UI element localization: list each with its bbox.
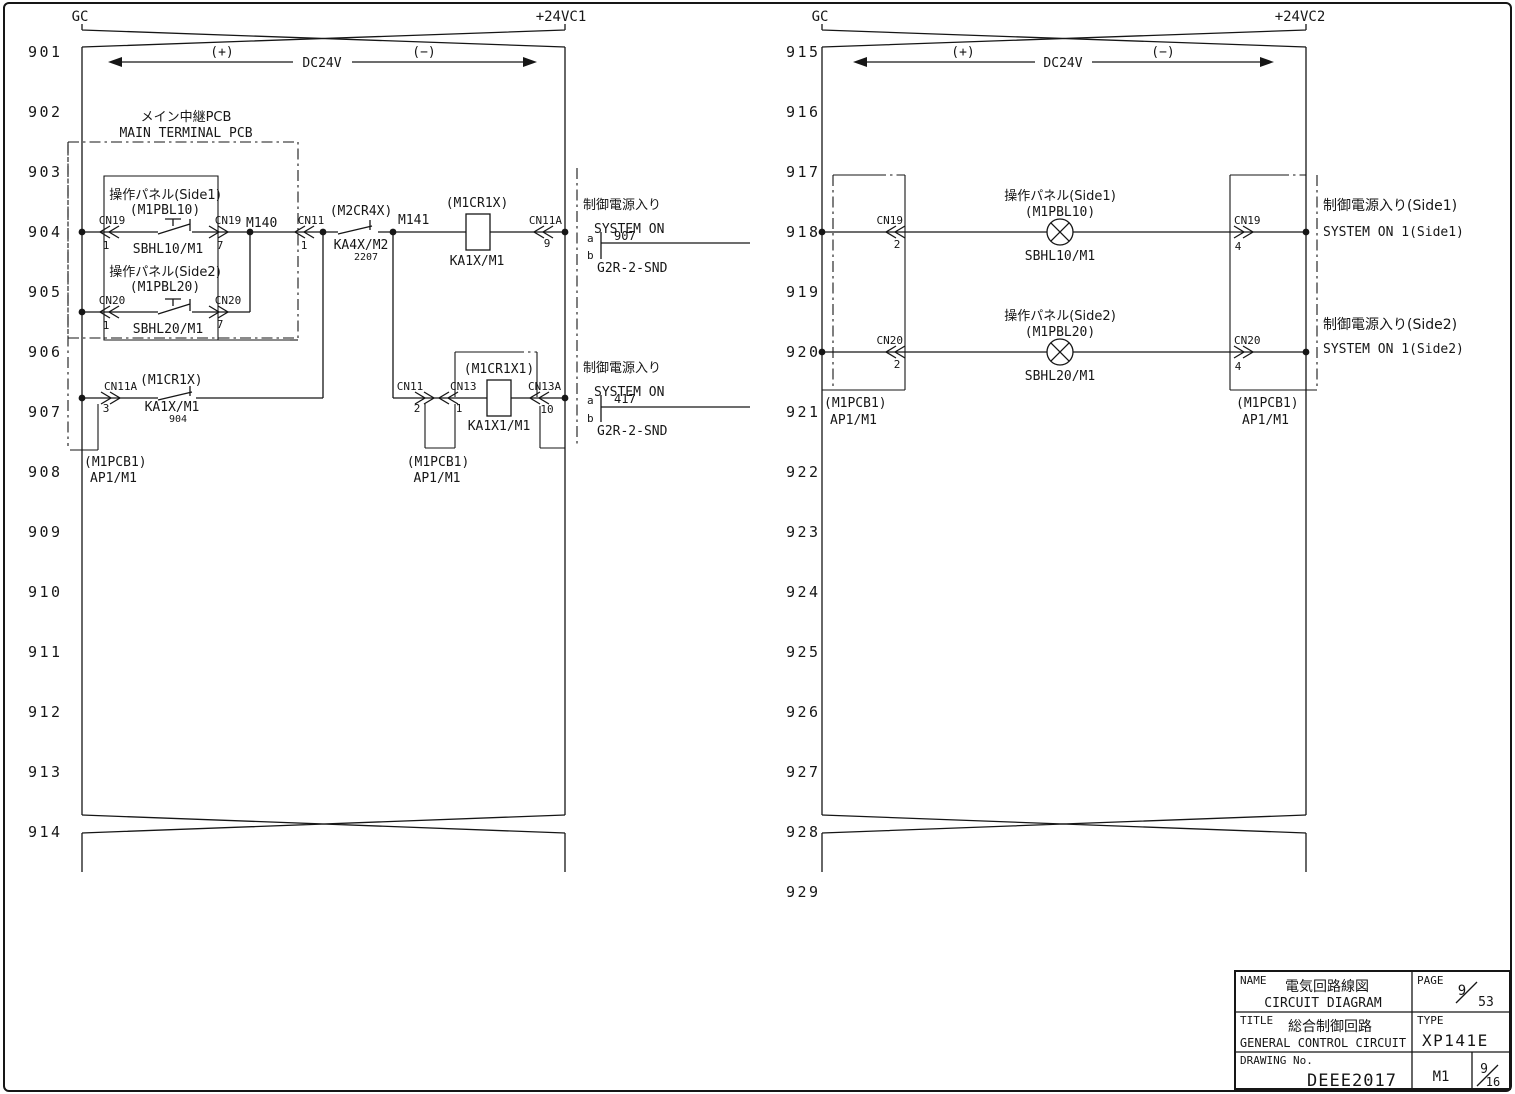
name-jp: 電気回路線図	[1285, 979, 1369, 995]
line-number: 919	[786, 283, 821, 301]
left-polarity-minus: (−)	[412, 45, 435, 60]
lamp-sbhl10	[1047, 219, 1073, 245]
type-label: TYPE	[1417, 1014, 1444, 1027]
line-number: 918	[786, 223, 821, 241]
pushbutton-switch-sbhl20	[158, 299, 190, 314]
line-number: 922	[786, 463, 821, 481]
right-voltage-label: DC24V	[1043, 56, 1082, 71]
right-pcb-right-id: (M1PCB1)	[1236, 396, 1299, 411]
page-denominator: 53	[1478, 995, 1494, 1010]
right-polarity-plus: (+)	[951, 45, 974, 60]
lamp2-conn-right: CN20	[1234, 334, 1261, 347]
line-number: 914	[28, 823, 63, 841]
row-920: 操作パネル(Side2) (M1PBL20) CN20 2 SBHL20/M1 …	[819, 308, 1464, 384]
relay-contact-ka4x	[338, 220, 372, 234]
lamp2-out-label-jp: 制御電源入り(Side2)	[1323, 317, 1457, 333]
cn11-pin: 1	[301, 239, 308, 252]
page-border	[4, 3, 1511, 1091]
line-number: 916	[786, 103, 821, 121]
line-number: 911	[28, 643, 63, 661]
ka4x-id: (M2CR4X)	[330, 204, 393, 219]
lamp1-out-label-jp: 制御電源入り(Side1)	[1323, 198, 1457, 214]
right-power-rails	[822, 47, 1306, 815]
cn11a3-pin: 3	[103, 402, 110, 415]
cn11-2-label: CN11	[397, 380, 424, 393]
page-label: PAGE	[1417, 974, 1444, 987]
drawing-no-label: DRAWING No.	[1240, 1054, 1313, 1067]
drawing-no-value: DEEE2017	[1307, 1071, 1397, 1091]
pcb-left-bracket	[70, 404, 98, 450]
right-pcb-labels: (M1PCB1) AP1/M1 (M1PCB1) AP1/M1	[824, 396, 1299, 428]
lamp1-conn-left: CN19	[877, 214, 904, 227]
sys1-wire-ref: 907	[614, 229, 636, 243]
sys1-terminal-b: b	[587, 249, 594, 262]
circuit-diagram-page: GC +24VC1 (+) (−) DC24V 901 902 903 904 …	[0, 0, 1515, 1094]
line-number: 906	[28, 343, 63, 361]
title-en: GENERAL CONTROL CIRCUIT	[1240, 1036, 1406, 1050]
sw2-pin-out: 7	[217, 318, 224, 331]
line-number: 912	[28, 703, 63, 721]
left-bus-vcc-label: +24VC1	[536, 9, 587, 25]
lamp2-pin-in: 2	[894, 358, 901, 371]
left-polarity-plus: (+)	[210, 45, 233, 60]
right-bus-crossover-top	[822, 24, 1306, 47]
title-block: NAME 電気回路線図 CIRCUIT DIAGRAM PAGE 9 53 TI…	[1235, 971, 1510, 1091]
sys2-part-number: G2R-2-SND	[597, 424, 668, 439]
lamp2-panel-label-jp: 操作パネル(Side2)	[1004, 308, 1116, 324]
line-number: 927	[786, 763, 821, 781]
line-number: 913	[28, 763, 63, 781]
lamp1-conn-right: CN19	[1234, 214, 1261, 227]
cn11-2-pin: 2	[414, 402, 421, 415]
sys1-part-number: G2R-2-SND	[597, 261, 668, 276]
ka4x-ref: 2207	[354, 252, 378, 263]
name-en: CIRCUIT DIAGRAM	[1264, 996, 1382, 1011]
sw1-panel-label-jp: 操作パネル(Side1)	[109, 187, 221, 203]
sw2-pin-in: 1	[103, 319, 110, 332]
sw1-conn-left: CN19	[99, 214, 126, 227]
sw2-conn-right: CN20	[215, 294, 242, 307]
line-number: 928	[786, 823, 821, 841]
line-number: 902	[28, 103, 63, 121]
lamp1-panel-label-jp: 操作パネル(Side1)	[1004, 188, 1116, 204]
junction-dot	[562, 229, 569, 236]
pushbutton-switch-sbhl10	[158, 219, 190, 234]
left-bus-gc-label: GC	[72, 9, 89, 25]
cn11a3-label: CN11A	[104, 380, 137, 393]
line-number: 908	[28, 463, 63, 481]
line-number: 901	[28, 43, 63, 61]
hold-contact-ref: 904	[169, 414, 187, 425]
lamp1-name: SBHL10/M1	[1025, 249, 1095, 264]
cn13-1-label: CN13	[450, 380, 477, 393]
left-bus-crossover-bottom	[82, 815, 565, 872]
left-line-numbers: 901 902 903 904 905 906 907 908 909 910 …	[28, 43, 63, 841]
pcb-left-name: AP1/M1	[90, 471, 137, 486]
node-m140-label: M140	[246, 216, 277, 231]
left-bus-crossover-top	[82, 24, 565, 47]
type-value: XP141E	[1422, 1031, 1489, 1050]
line-number: 923	[786, 523, 821, 541]
line-number: 905	[28, 283, 63, 301]
title-label: TITLE	[1240, 1014, 1273, 1027]
junction-dot	[79, 309, 86, 316]
lamp1-pin-out: 4	[1235, 240, 1242, 253]
right-bus-crossover-bottom	[822, 815, 1306, 872]
system-on-output-1: 制御電源入り SYSTEM ON a 907 b G2R-2-SND	[577, 168, 750, 444]
line-number: 915	[786, 43, 821, 61]
main-terminal-pcb-label-en: MAIN TERMINAL PCB	[119, 126, 252, 141]
relay-contact-m1cr1x	[158, 386, 192, 400]
line-number: 921	[786, 403, 821, 421]
sheet-id: M1	[1433, 1069, 1450, 1085]
cn13a-label: CN13A	[528, 380, 561, 393]
line-number: 926	[786, 703, 821, 721]
sys2-label-jp: 制御電源入り	[583, 361, 661, 376]
sw2-name: SBHL20/M1	[133, 322, 203, 337]
lamp1-pin-in: 2	[894, 238, 901, 251]
lamp2-device-id: (M1PBL20)	[1025, 325, 1095, 340]
cn13-1-pin: 1	[456, 402, 463, 415]
coil1-id: (M1CR1X)	[446, 196, 509, 211]
line-number: 907	[28, 403, 63, 421]
junction-dot	[1303, 349, 1310, 356]
sys1-terminal-a: a	[587, 232, 594, 245]
title-jp: 総合制御回路	[1288, 1019, 1372, 1035]
line-number: 920	[786, 343, 821, 361]
lamp2-out-label-en: SYSTEM ON 1(Side2)	[1323, 342, 1464, 357]
coil2-id: (M1CR1X1)	[464, 362, 534, 377]
sys2-terminal-a: a	[587, 394, 594, 407]
cn11-label: CN11	[298, 214, 325, 227]
left-dc24v-arrow: (+) (−) DC24V	[108, 45, 537, 71]
right-bus-vcc-label: +24VC2	[1275, 9, 1326, 25]
name-label: NAME	[1240, 974, 1267, 987]
lamp1-out-label-en: SYSTEM ON 1(Side1)	[1323, 225, 1464, 240]
relay-coil-ka1x	[466, 214, 490, 250]
sw1-device-id: (M1PBL10)	[130, 203, 200, 218]
line-number: 925	[786, 643, 821, 661]
junction-dot	[819, 349, 826, 356]
sw2-panel-label-jp: 操作パネル(Side2)	[109, 264, 221, 280]
coil2-name: KA1X1/M1	[468, 419, 531, 434]
right-circuit: GC +24VC2 (+) (−) DC24V 915 916 917 918 …	[786, 9, 1464, 901]
sw1-pin-in: 1	[103, 239, 110, 252]
lamp2-pin-out: 4	[1235, 360, 1242, 373]
lamp-sbhl20	[1047, 339, 1073, 365]
right-pcb-left-name: AP1/M1	[830, 413, 877, 428]
ka4x-name: KA4X/M2	[334, 238, 389, 253]
hold-contact-id: (M1CR1X)	[140, 373, 203, 388]
sw1-conn-right: CN19	[215, 214, 242, 227]
junction-dot	[79, 229, 86, 236]
sys1-label-jp: 制御電源入り	[583, 198, 661, 213]
cn11a9-pin: 9	[544, 237, 551, 250]
junction-dot	[562, 395, 569, 402]
lamp2-conn-left: CN20	[877, 334, 904, 347]
system-on-output-2: 制御電源入り SYSTEM ON a 417 b G2R-2-SND	[583, 361, 750, 439]
sys2-terminal-b: b	[587, 412, 594, 425]
row-918: 操作パネル(Side1) (M1PBL10) CN19 2 SBHL10/M1 …	[819, 188, 1464, 264]
right-pcb-right-name: AP1/M1	[1242, 413, 1289, 428]
line-number: 924	[786, 583, 821, 601]
line-number: 904	[28, 223, 63, 241]
right-pcb-left-id: (M1PCB1)	[824, 396, 887, 411]
sys2-wire-ref: 417	[614, 392, 636, 406]
left-circuit: GC +24VC1 (+) (−) DC24V 901 902 903 904 …	[28, 9, 750, 872]
lamp1-device-id: (M1PBL10)	[1025, 205, 1095, 220]
relay-coil-ka1x1	[487, 380, 511, 416]
pcb-mid-name: AP1/M1	[414, 471, 461, 486]
line-number: 910	[28, 583, 63, 601]
sw2-device-id: (M1PBL20)	[130, 280, 200, 295]
coil1-name: KA1X/M1	[450, 254, 505, 269]
pcb-mid-id: (M1PCB1)	[407, 455, 470, 470]
left-voltage-label: DC24V	[302, 56, 341, 71]
sw1-pin-out: 7	[217, 239, 224, 252]
sheet-denominator: 16	[1486, 1075, 1500, 1089]
cn11a9-label: CN11A	[529, 214, 562, 227]
right-bus-gc-label: GC	[812, 9, 829, 25]
line-number: 909	[28, 523, 63, 541]
sw1-name: SBHL10/M1	[133, 242, 203, 257]
junction-dot	[819, 229, 826, 236]
lamp2-name: SBHL20/M1	[1025, 369, 1095, 384]
main-terminal-pcb-label-jp: メイン中継PCB	[141, 110, 232, 125]
line-number: 903	[28, 163, 63, 181]
node-m141-label: M141	[398, 213, 429, 228]
sw2-conn-left: CN20	[99, 294, 126, 307]
hold-contact-name: KA1X/M1	[145, 400, 200, 415]
cn13a-pin: 10	[540, 403, 553, 416]
right-polarity-minus: (−)	[1151, 45, 1174, 60]
schematic-canvas: GC +24VC1 (+) (−) DC24V 901 902 903 904 …	[0, 0, 1515, 1094]
pcb-left-id: (M1PCB1)	[84, 455, 147, 470]
right-line-numbers: 915 916 917 918 919 920 921 922 923 924 …	[786, 43, 821, 901]
line-number: 917	[786, 163, 821, 181]
junction-dot	[1303, 229, 1310, 236]
junction-dot	[79, 395, 86, 402]
right-dc24v-arrow: (+) (−) DC24V	[853, 45, 1274, 71]
line-number: 929	[786, 883, 821, 901]
